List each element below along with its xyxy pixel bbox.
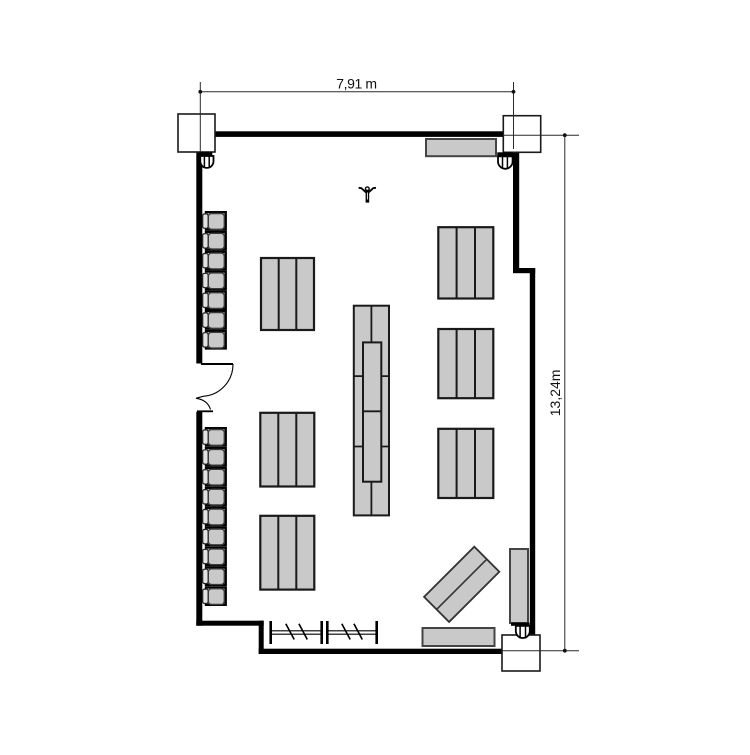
svg-text:13,24m: 13,24m (547, 370, 563, 417)
svg-text:7,91 m: 7,91 m (336, 75, 376, 91)
